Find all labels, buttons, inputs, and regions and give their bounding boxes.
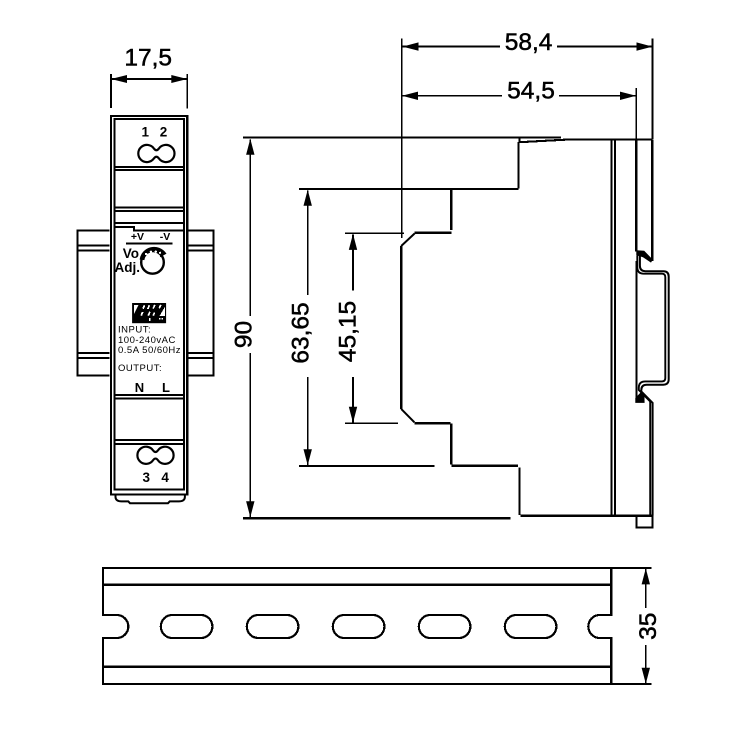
- svg-text:0.5A 50/60Hz: 0.5A 50/60Hz: [118, 345, 181, 356]
- svg-text:OUTPUT:: OUTPUT:: [118, 363, 162, 374]
- svg-text:1: 1: [142, 125, 150, 140]
- svg-text:63,65: 63,65: [287, 302, 314, 363]
- svg-text:58,4: 58,4: [505, 29, 553, 56]
- svg-text:L: L: [162, 380, 170, 395]
- svg-text:54,5: 54,5: [507, 78, 555, 105]
- svg-text:2: 2: [160, 125, 168, 140]
- svg-text:Vo: Vo: [123, 246, 139, 261]
- svg-text:-V: -V: [160, 231, 171, 243]
- svg-text:35: 35: [635, 613, 662, 640]
- svg-text:17,5: 17,5: [124, 45, 172, 72]
- svg-text:3: 3: [142, 470, 150, 485]
- svg-text:INPUT:: INPUT:: [118, 325, 151, 336]
- svg-text:+V: +V: [131, 231, 144, 243]
- svg-text:N: N: [135, 380, 144, 395]
- svg-text:90: 90: [230, 321, 257, 348]
- svg-text:Adj.: Adj.: [115, 260, 141, 275]
- svg-text:45,15: 45,15: [335, 301, 362, 362]
- svg-text:4: 4: [161, 470, 169, 485]
